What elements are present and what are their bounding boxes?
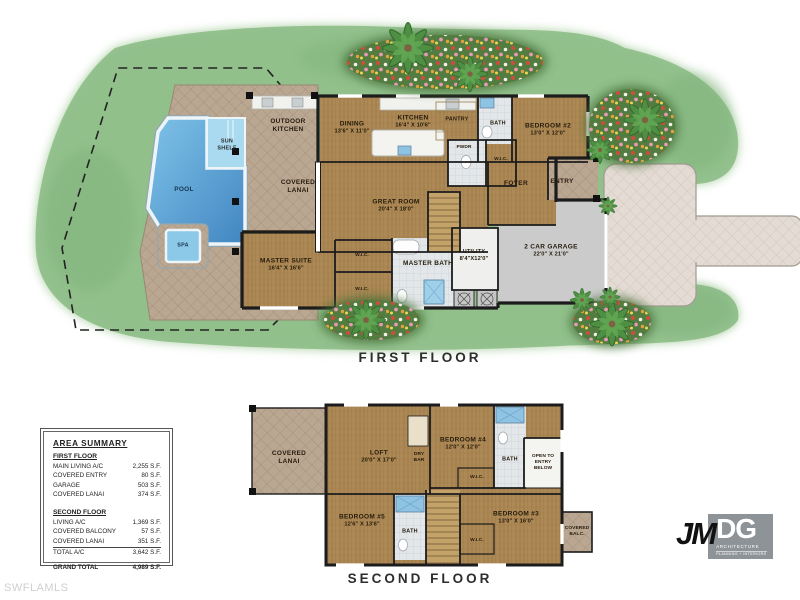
room-name: BATH	[502, 457, 518, 464]
room-name: DRY BAR	[411, 452, 427, 464]
area-row-value: 4,989 S.F.	[133, 563, 161, 572]
area-summary-inner: AREA SUMMARY FIRST FLOOR MAIN LIVING A/C…	[43, 431, 170, 563]
room-label-sun-shelf: SUN SHELF	[214, 138, 240, 152]
room-name: OPEN TO ENTRY BELOW	[528, 454, 558, 472]
area-row-value: 3,642 S.F.	[133, 548, 161, 557]
room-name: PWDR	[456, 145, 471, 151]
room-dims: 13'0" X 12'0"	[525, 131, 571, 138]
area-row: GARAGE503 S.F.	[53, 481, 161, 490]
room-name: KITCHEN	[395, 114, 430, 122]
area-row-label: COVERED BALCONY	[53, 527, 116, 536]
room-label-foyer: FOYER	[504, 180, 528, 188]
room-name: BEDROOM #3	[493, 510, 539, 518]
room-dims: 22'0" X 21'0"	[524, 252, 577, 259]
room-label-pool: POOL	[174, 186, 194, 194]
room-name: FOYER	[504, 180, 528, 188]
room-name: OUTDOOR KITCHEN	[269, 118, 307, 134]
room-label-entry: ENTRY	[550, 178, 573, 186]
jmdg-logo-jm: JM	[676, 518, 715, 549]
jmdg-logo-architecture: ARCHITECTURE	[716, 545, 766, 550]
area-row-label: MAIN LIVING A/C	[53, 462, 103, 471]
room-name: GREAT ROOM	[372, 198, 419, 206]
room-name: BATH	[402, 529, 418, 536]
room-dims: 13'0" X 16'0"	[493, 519, 539, 526]
area-row-value: 80 S.F.	[141, 471, 161, 480]
room-name: W.I.C.	[470, 538, 484, 544]
area-row-value: 57 S.F.	[141, 527, 161, 536]
area-summary-first-floor-heading: FIRST FLOOR	[53, 453, 161, 460]
room-dims: 13'6" X 11'0"	[334, 129, 369, 136]
room-label-covered-balc: COVERED BALC.	[562, 526, 592, 538]
room-label-garage: 2 CAR GARAGE22'0" X 21'0"	[524, 243, 577, 258]
room-name: W.I.C.	[494, 157, 508, 163]
house-second-floor	[249, 405, 592, 565]
room-name: BEDROOM #2	[525, 122, 571, 130]
room-label-utility: UTILITY8'4"X12'0"	[460, 249, 489, 263]
area-row-label: GARAGE	[53, 481, 80, 490]
room-name: COVERED BALC.	[562, 526, 592, 538]
room-label-master-bath: MASTER BATH	[403, 260, 453, 268]
room-name: ENTRY	[550, 178, 573, 186]
area-row-label: GRAND TOTAL	[53, 563, 98, 572]
room-label-wic-bed2: W.I.C.	[494, 157, 508, 163]
area-summary-box: AREA SUMMARY FIRST FLOOR MAIN LIVING A/C…	[40, 428, 173, 566]
room-label-bedroom4: BEDROOM #412'0" X 12'0"	[440, 436, 486, 451]
room-label-pwdr: PWDR	[456, 145, 471, 151]
jmdg-logo-planning: PLANNING + INTERIORS	[716, 551, 766, 557]
area-row-label: LIVING A/C	[53, 518, 86, 527]
area-row: COVERED LANAI351 S.F.	[53, 537, 161, 546]
room-dims: 16'4" X 16'6"	[260, 266, 312, 273]
area-summary-title: AREA SUMMARY	[53, 439, 161, 448]
room-name: MASTER BATH	[403, 260, 453, 268]
area-row-value: 503 S.F.	[138, 481, 161, 490]
jmdg-logo: JM DG ARCHITECTURE PLANNING + INTERIORS	[676, 514, 773, 559]
room-name: COVERED LANAI	[278, 179, 318, 195]
swflamls-watermark: SWFLAMLS	[4, 582, 69, 594]
area-row: COVERED BALCONY57 S.F.	[53, 527, 161, 536]
room-dims: 12'0" X 12'0"	[440, 445, 486, 452]
area-row-value: 2,255 S.F.	[133, 462, 161, 471]
area-row-label: COVERED LANAI	[53, 537, 104, 546]
room-label-master-suite: MASTER SUITE16'4" X 16'6"	[260, 257, 312, 272]
room-name: W.I.C.	[355, 253, 369, 259]
room-dims: 20'4" X 18'0"	[372, 207, 419, 214]
room-name: W.I.C.	[355, 287, 369, 293]
driveway	[604, 164, 800, 306]
area-row-label: COVERED LANAI	[53, 490, 104, 499]
room-label-bedroom5: BEDROOM #512'6" X 13'6"	[339, 513, 385, 528]
area-row-value: 374 S.F.	[138, 490, 161, 499]
room-name: LOFT	[361, 449, 396, 457]
room-name: DINING	[334, 120, 369, 128]
room-dims: 20'0" X 17'0"	[361, 458, 396, 465]
room-label-wic2: W.I.C.	[355, 287, 369, 293]
area-row-value: 1,369 S.F.	[133, 518, 161, 527]
room-dims: 16'4" X 10'6"	[395, 123, 430, 130]
area-row-total: TOTAL A/C3,642 S.F.	[53, 547, 161, 557]
room-name: 2 CAR GARAGE	[524, 243, 577, 251]
floor-plan-page: OUTDOOR KITCHEN DINING13'6" X 11'0" KITC…	[0, 0, 800, 600]
room-name: SUN SHELF	[214, 138, 240, 152]
room-label-dining: DINING13'6" X 11'0"	[334, 120, 369, 135]
room-label-pantry: PANTRY	[445, 117, 468, 124]
room-name: W.I.C.	[470, 475, 484, 481]
room-dims: 12'6" X 13'6"	[339, 522, 385, 529]
area-row: LIVING A/C1,369 S.F.	[53, 518, 161, 527]
room-label-bath: BATH	[490, 121, 506, 128]
room-name: UTILITY	[460, 249, 489, 256]
room-label-bath-upper: BATH	[502, 457, 518, 464]
area-row: COVERED LANAI374 S.F.	[53, 490, 161, 499]
area-row-label: COVERED ENTRY	[53, 471, 107, 480]
room-label-bedroom3: BEDROOM #313'0" X 16'0"	[493, 510, 539, 525]
area-row-grand-total: GRAND TOTAL4,989 S.F.	[53, 563, 161, 572]
area-row-value: 351 S.F.	[138, 537, 161, 546]
room-label-loft: LOFT20'0" X 17'0"	[361, 449, 396, 464]
area-row: MAIN LIVING A/C2,255 S.F.	[53, 462, 161, 471]
room-label-covered-lanai: COVERED LANAI	[278, 179, 318, 195]
room-name: POOL	[174, 186, 194, 194]
room-name: SPA	[177, 243, 189, 250]
jmdg-logo-box: DG ARCHITECTURE PLANNING + INTERIORS	[708, 514, 772, 559]
room-label-wic-upper: W.I.C.	[470, 475, 484, 481]
dry-bar-counter	[408, 416, 428, 446]
room-name: BEDROOM #5	[339, 513, 385, 521]
room-name: BEDROOM #4	[440, 436, 486, 444]
area-summary-second-floor-heading: SECOND FLOOR	[53, 509, 161, 516]
room-label-spa: SPA	[177, 243, 189, 250]
second-floor-title: SECOND FLOOR	[348, 571, 493, 586]
first-floor-title: FIRST FLOOR	[359, 350, 482, 365]
room-label-dry-bar: DRY BAR	[411, 452, 427, 464]
room-label-wic1: W.I.C.	[355, 253, 369, 259]
room-label-bath-lower: BATH	[402, 529, 418, 536]
room-label-open-to-entry: OPEN TO ENTRY BELOW	[528, 454, 558, 472]
room-label-kitchen: KITCHEN16'4" X 10'6"	[395, 114, 430, 129]
room-name: MASTER SUITE	[260, 257, 312, 265]
room-label-wic-lower: W.I.C.	[470, 538, 484, 544]
room-name: COVERED LANAI	[269, 450, 309, 466]
area-row: COVERED ENTRY80 S.F.	[53, 471, 161, 480]
room-name: BATH	[490, 121, 506, 128]
room-name: PANTRY	[445, 117, 468, 124]
jmdg-logo-dg: DG	[716, 516, 766, 543]
room-label-covered-lanai-2: COVERED LANAI	[269, 450, 309, 466]
room-dims: 8'4"X12'0"	[460, 256, 489, 263]
room-label-bedroom2: BEDROOM #213'0" X 12'0"	[525, 122, 571, 137]
room-label-outdoor-kitchen: OUTDOOR KITCHEN	[269, 118, 307, 134]
area-row-label: TOTAL A/C	[53, 548, 84, 557]
room-label-great-room: GREAT ROOM20'4" X 18'0"	[372, 198, 419, 213]
